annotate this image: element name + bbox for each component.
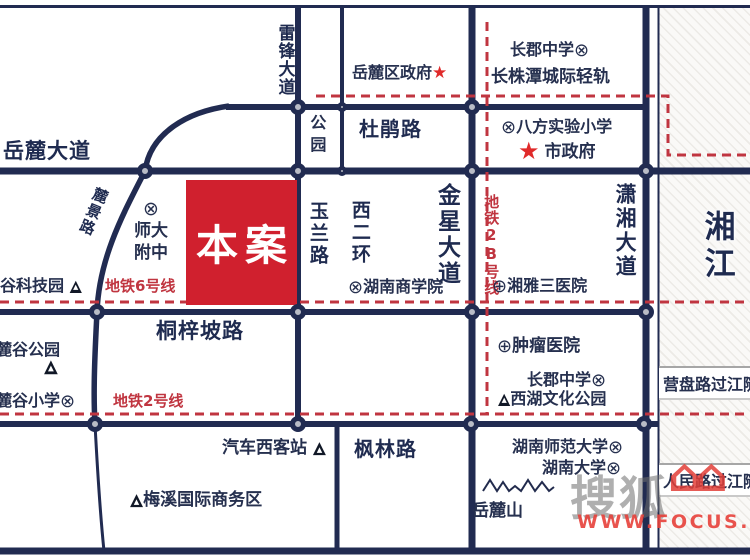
- road-junction-node: [290, 163, 306, 179]
- poi-text: 长郡中学: [527, 370, 591, 389]
- road-junction-node: [636, 416, 652, 432]
- poi-text: 汽车西客站: [222, 438, 307, 458]
- road-label-xiaoxiang: 潇湘大道: [613, 183, 637, 279]
- poi-text: 谷科技园: [0, 276, 64, 295]
- poi-text: 市政府: [545, 142, 596, 162]
- road-junction-node: [464, 304, 480, 320]
- poi-text: 师大: [134, 221, 168, 241]
- road-label-leifeng: 雷锋大道: [274, 24, 294, 96]
- poi-yuelu-mountain: 岳麓山: [472, 502, 523, 522]
- watermark-house-icon: ⌂⌂: [668, 448, 722, 502]
- poi-hunan-normal-univ: 湖南师范大学⊗: [512, 437, 623, 458]
- poi-changjun-middle-south: 长郡中学⊗: [527, 370, 606, 391]
- poi-changjun-middle-north: 长郡中学⊗: [510, 40, 589, 61]
- landmark-icon: ▲: [70, 277, 82, 295]
- road-junction-node: [337, 166, 347, 176]
- poi-text: 湖南师范大学: [512, 437, 608, 456]
- road-junction-node: [464, 163, 480, 179]
- poi-text: 岳麓区政府: [352, 63, 432, 82]
- poi-city-gov: ★市政府: [518, 136, 596, 164]
- landmark-icon: ▲: [498, 390, 510, 408]
- poi-text: 八方实验小学: [516, 117, 612, 136]
- school-icon: ⊗: [143, 198, 159, 220]
- road-junction-node: [290, 416, 306, 432]
- poi-hunan-business-college: ⊗湖南商学院: [348, 277, 443, 298]
- road-junction-node: [290, 304, 306, 320]
- poi-yuelu-district-gov: 岳麓区政府★: [352, 64, 447, 84]
- star-icon: ★: [432, 63, 447, 83]
- mountain-ridge-icon: [482, 475, 557, 495]
- poi-lugu-primary: 麓谷小学⊗: [0, 391, 75, 412]
- road-junction-node: [337, 102, 347, 112]
- poi-text: 长郡中学: [510, 40, 574, 59]
- location-map: 本案 岳麓大道 杜鹃路 桐梓坡路 枫林路 雷锋大道 公园 玉兰路 西二环 金星大…: [0, 0, 750, 560]
- road-junction-node: [463, 416, 479, 432]
- road-junction-node: [638, 163, 654, 179]
- poi-meixi-biz: ▲梅溪国际商务区: [130, 491, 262, 511]
- road-label-tongzipo: 桐梓坡路: [156, 319, 244, 343]
- road-junction-node: [137, 163, 153, 179]
- poi-text: 麓谷小学: [0, 391, 60, 410]
- poi-text: 湖南商学院: [363, 277, 443, 296]
- poi-shida-fuzhong: ⊗ 师大 附中: [130, 197, 172, 264]
- landmark-icon: ▲: [44, 357, 58, 378]
- poi-text: 附中: [134, 243, 168, 263]
- poi-bafang-primary: ⊗八方实验小学: [501, 117, 612, 138]
- school-icon: ⊗: [591, 370, 606, 391]
- school-icon: ⊗: [501, 117, 516, 138]
- school-icon: ⊗: [608, 437, 623, 458]
- poi-bus-west-station: 汽车西客站 ▲: [222, 439, 326, 459]
- road-junction-node: [638, 304, 654, 320]
- road-junction-node: [464, 99, 480, 115]
- river-label-xiangjiang: 湘江: [698, 210, 734, 284]
- road-label-jinxing: 金星大道: [433, 183, 459, 287]
- poi-lugu-park-icon: ▲: [44, 357, 58, 378]
- road-label-west-second-ring: 西二环: [348, 200, 370, 266]
- road-junction-node: [89, 304, 105, 320]
- school-icon: ⊗: [348, 277, 363, 298]
- poi-text: 肿瘤医院: [512, 336, 580, 356]
- watermark-url: WWW.FOCUS.CN: [577, 511, 750, 533]
- poi-xihu-culture-park: ▲西湖文化公园: [498, 390, 606, 408]
- road-junction-node: [290, 99, 306, 115]
- road-label-fenglin: 枫林路: [354, 438, 417, 461]
- road-label-yulan: 玉兰路: [306, 201, 328, 267]
- metro-label-line2: 地铁2号线: [113, 393, 183, 410]
- hospital-icon: ⊕: [492, 276, 507, 297]
- poi-text: 湘雅三医院: [507, 276, 587, 295]
- poi-xiangya3-hospital: ⊕湘雅三医院: [492, 276, 587, 297]
- lightrail-label: 长株潭城际轻轨: [491, 68, 610, 88]
- star-icon: ★: [518, 137, 540, 165]
- poi-text: 梅溪国际商务区: [143, 490, 262, 510]
- tunnel-label: 营盘路过江隧道: [663, 375, 750, 394]
- road-label-yuelu-avenue: 岳麓大道: [3, 139, 91, 163]
- poi-tech-park: 谷科技园 ▲: [0, 277, 82, 295]
- project-site-block: 本案: [186, 180, 297, 305]
- landmark-icon: ▲: [130, 491, 143, 511]
- road-junction-node: [87, 416, 103, 432]
- road-label-dujuan: 杜鹃路: [359, 118, 422, 141]
- yingpan-tunnel-box: 营盘路过江隧道: [659, 366, 750, 400]
- poi-tumor-hospital: ⊕肿瘤医院: [497, 336, 580, 357]
- metro-label-line6: 地铁6号线: [105, 278, 175, 295]
- road-lujing-curve-south: [95, 424, 104, 551]
- school-icon: ⊗: [574, 40, 589, 61]
- hospital-icon: ⊕: [497, 336, 512, 357]
- label-park-gap: 公园: [307, 114, 325, 158]
- project-site-label: 本案: [196, 212, 294, 273]
- landmark-icon: ▲: [313, 439, 326, 459]
- poi-text: 西湖文化公园: [510, 389, 606, 408]
- school-icon: ⊗: [60, 391, 75, 412]
